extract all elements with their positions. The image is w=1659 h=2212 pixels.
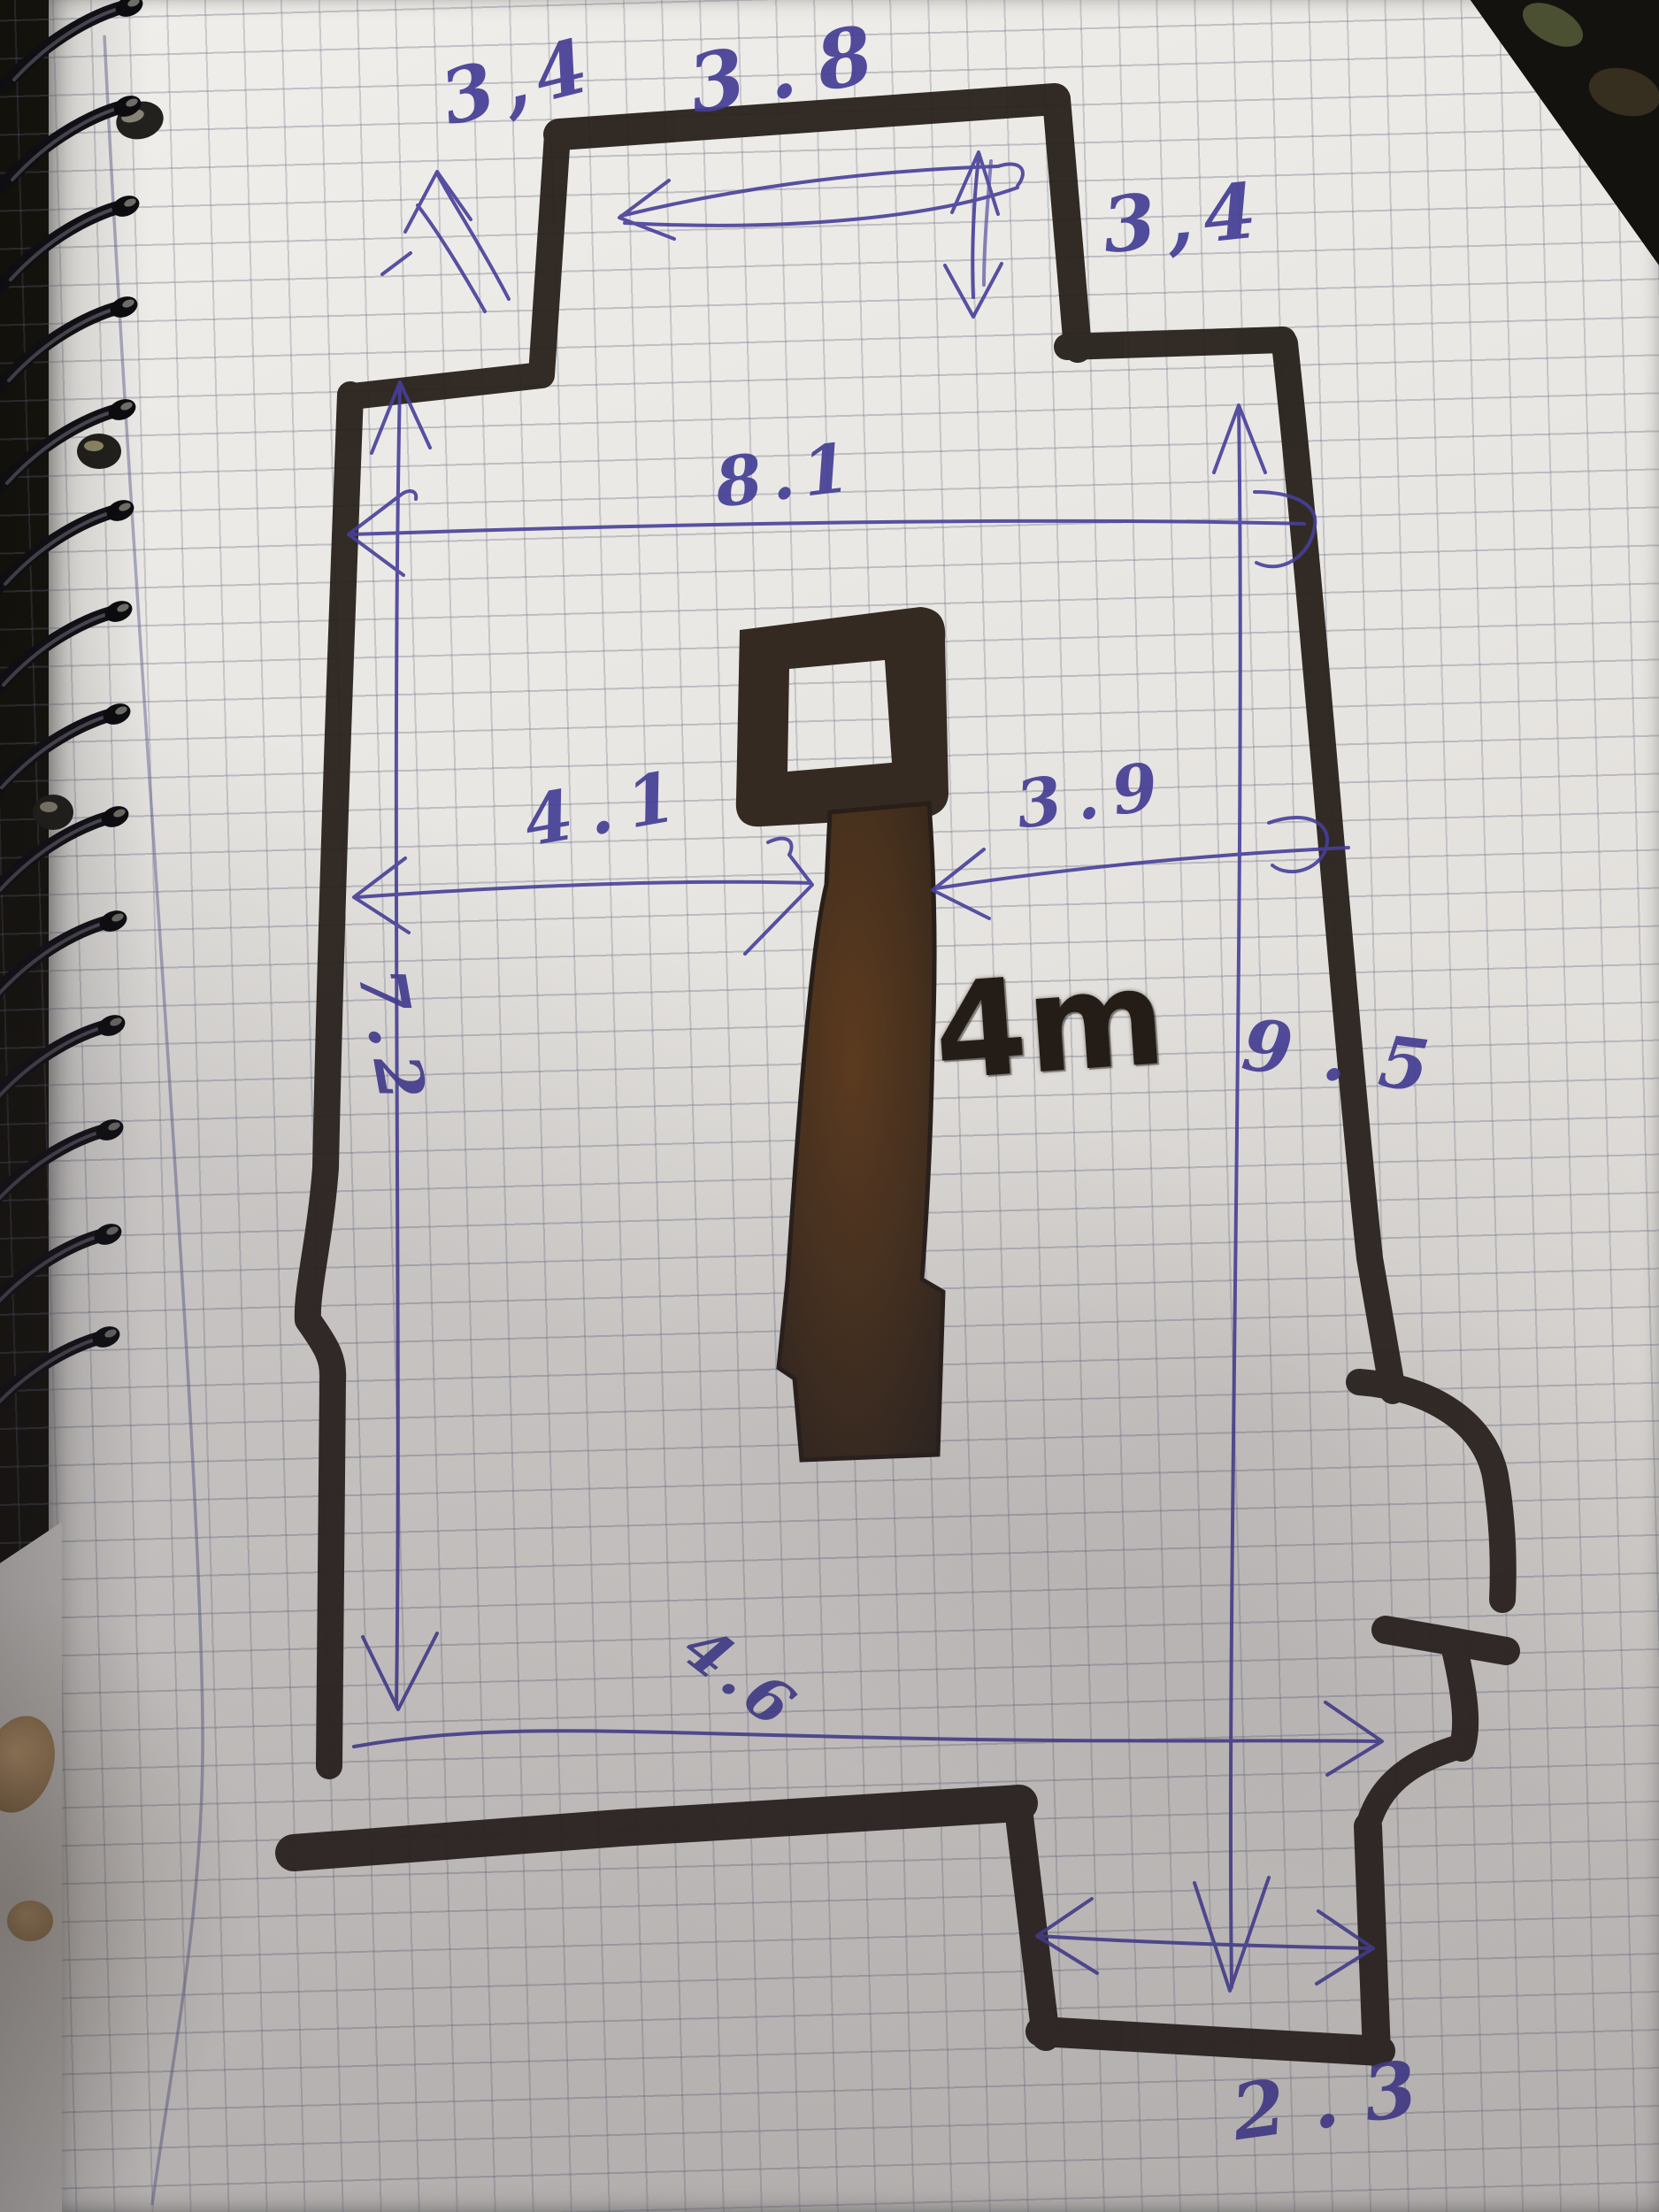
- shovel-shaft: [779, 803, 943, 1460]
- finger-tip-2: [7, 1901, 53, 1941]
- alcove-door-connector: [1368, 1747, 1460, 1826]
- dim-arrow-bottom-width: [354, 1702, 1382, 1775]
- wall-step-right: [1067, 340, 1283, 347]
- wall-left: [308, 395, 350, 1766]
- dim-line-right-height: [1194, 405, 1269, 1991]
- margin-line: [104, 35, 203, 2205]
- door-hook: [1359, 1382, 1503, 1600]
- dim-arrow-top-right-height: [945, 152, 1002, 317]
- photo-background: 3,4 3.8 3,4 8.1 4.1 3.9 7.2 9.5 4m 4.6 2…: [0, 0, 1659, 2212]
- shovel-sketch: [736, 607, 949, 1460]
- dim-arrow-object-to-right: [933, 818, 1348, 918]
- dim-label-top-right-height: 3,4: [1098, 165, 1271, 272]
- alcove-bottom-wall: [1041, 2032, 1380, 2051]
- wall-notch-left: [352, 134, 557, 396]
- alcove-right-wall: [1368, 1826, 1377, 2053]
- wall-bottom: [294, 1803, 1019, 1853]
- door-jamb: [1455, 1649, 1465, 1748]
- dim-arrow-top-width: [619, 164, 1023, 239]
- spiral-binding: [0, 0, 146, 1417]
- object-length-note: 4m: [929, 941, 1170, 1110]
- dim-arrow-top-left-height: [382, 172, 509, 311]
- dim-arrow-left-to-object: [354, 839, 812, 954]
- wall-notch-right: [1056, 99, 1078, 349]
- shovel-handle-grip: [736, 607, 949, 826]
- alcove-left-wall: [1018, 1801, 1046, 2037]
